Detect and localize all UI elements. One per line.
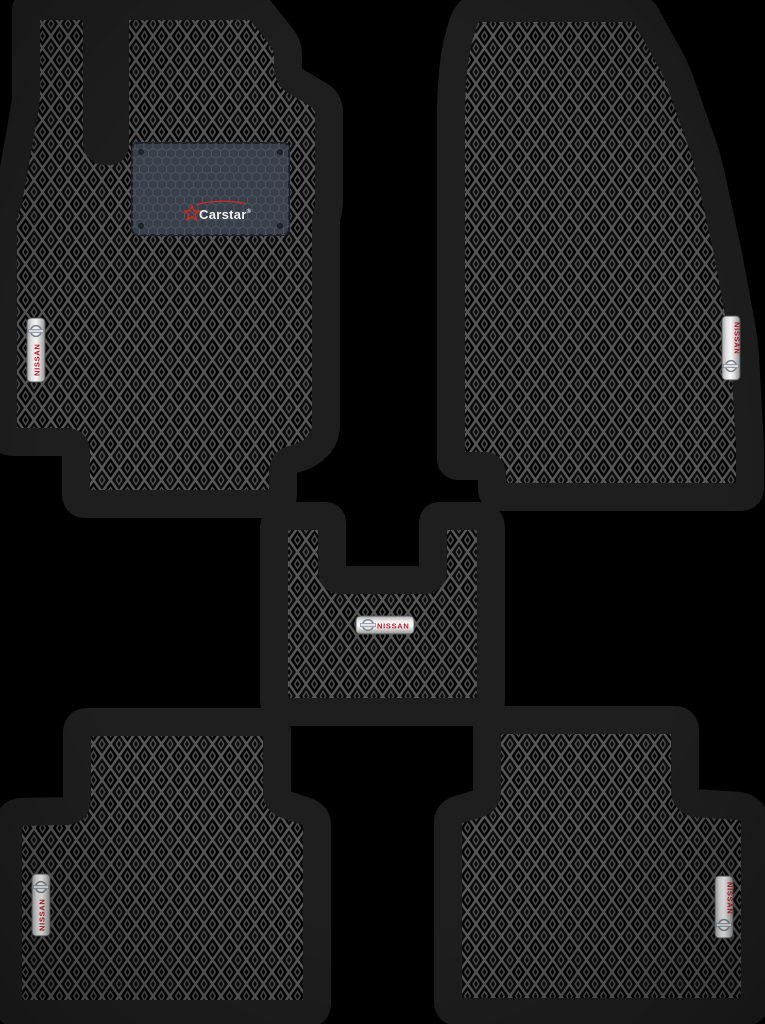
floor-mat-set-photo: Carstar® NISSAN NISSAN <box>0 0 765 1024</box>
mats-product-image: Carstar® NISSAN NISSAN <box>0 0 765 1024</box>
vignette-overlay <box>0 0 765 1024</box>
